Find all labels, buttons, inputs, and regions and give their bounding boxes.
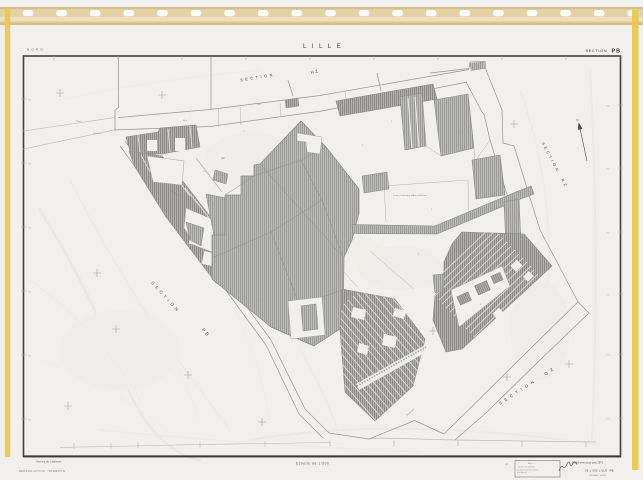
svg-text:Chemin: Chemin xyxy=(93,133,101,135)
svg-text:NORD: NORD xyxy=(27,48,45,52)
svg-text:A DEFAUT 1/1000: A DEFAUT 1/1000 xyxy=(590,474,607,477)
svg-text:Echelle de 1/500: Echelle de 1/500 xyxy=(296,462,329,466)
svg-text:59 1 000 LILLE PB: 59 1 000 LILLE PB xyxy=(585,469,614,473)
svg-text:Reçu .......: Reçu ....... xyxy=(528,463,537,465)
svg-text:Place: Place xyxy=(76,121,82,123)
svg-text:Service du Cadastre: Service du Cadastre xyxy=(36,460,62,464)
svg-text:Ce plan est conforme: Ce plan est conforme xyxy=(518,466,535,469)
svg-text:au plan minute de conserv.: au plan minute de conserv. xyxy=(517,468,539,471)
svg-text:à la date du ..........: à la date du .......... xyxy=(517,471,532,474)
svg-text:SECTION: SECTION xyxy=(586,49,608,53)
svg-text:REPRODUCTION INTERDITE: REPRODUCTION INTERDITE xyxy=(19,470,65,473)
svg-text:PB: PB xyxy=(612,49,622,55)
svg-text:Institut Catholique d'Arts et: Institut Catholique d'Arts et Metiers xyxy=(393,194,428,197)
svg-text:LILLE: LILLE xyxy=(303,43,346,50)
svg-text:Feuille mise à jour pour 1973: Feuille mise à jour pour 1973 xyxy=(572,462,604,465)
